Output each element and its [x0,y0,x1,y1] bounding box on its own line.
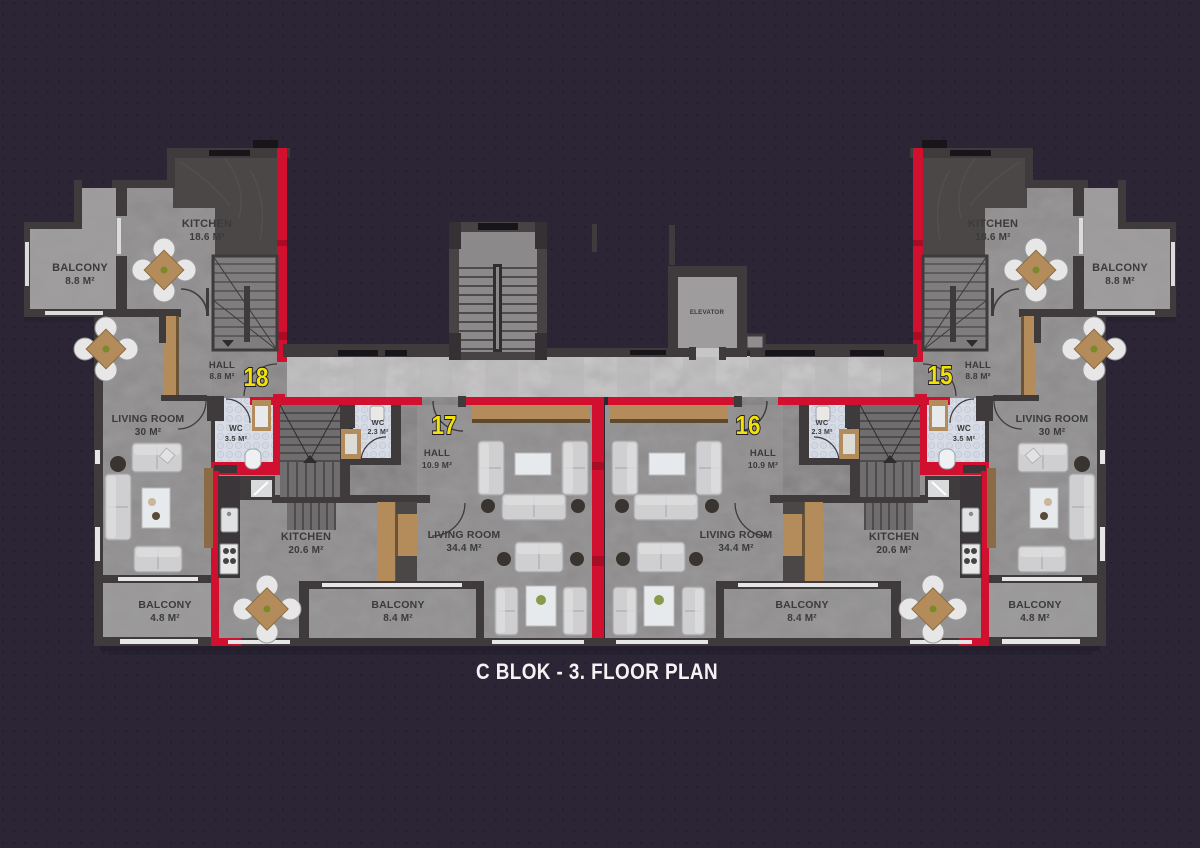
svg-text:ELEVATOR: ELEVATOR [690,309,725,316]
svg-text:LIVING ROOM: LIVING ROOM [428,529,501,541]
svg-text:34.4 M²: 34.4 M² [718,543,754,554]
svg-text:15: 15 [928,360,953,390]
svg-text:4.8 M²: 4.8 M² [150,613,180,624]
svg-text:WC: WC [372,418,385,427]
svg-text:8.4 M²: 8.4 M² [383,613,413,624]
svg-text:4.8 M²: 4.8 M² [1020,613,1050,624]
svg-text:8.8 M²: 8.8 M² [209,371,234,381]
svg-text:HALL: HALL [209,360,235,371]
svg-text:HALL: HALL [750,448,776,459]
svg-text:KITCHEN: KITCHEN [182,218,232,230]
svg-text:3.5 M²: 3.5 M² [225,434,248,443]
svg-text:BALCONY: BALCONY [775,599,828,611]
svg-text:18.6 M²: 18.6 M² [189,232,225,243]
svg-text:C BLOK - 3. FLOOR PLAN: C BLOK - 3. FLOOR PLAN [476,659,718,684]
svg-text:BALCONY: BALCONY [1092,262,1148,274]
svg-text:BALCONY: BALCONY [371,599,424,611]
svg-text:BALCONY: BALCONY [52,262,108,274]
svg-text:8.4 M²: 8.4 M² [787,613,817,624]
svg-text:BALCONY: BALCONY [138,599,191,611]
svg-text:18.6 M²: 18.6 M² [975,232,1011,243]
svg-text:8.8 M²: 8.8 M² [1105,276,1135,287]
svg-text:17: 17 [432,410,457,440]
svg-text:30 M²: 30 M² [1039,427,1066,438]
svg-text:LIVING ROOM: LIVING ROOM [1016,413,1089,425]
svg-text:KITCHEN: KITCHEN [968,218,1018,230]
svg-text:KITCHEN: KITCHEN [281,531,331,543]
svg-text:WC: WC [957,424,971,433]
svg-text:HALL: HALL [965,360,991,371]
svg-text:16: 16 [736,410,761,440]
svg-text:8.8 M²: 8.8 M² [65,276,95,287]
svg-text:WC: WC [816,418,829,427]
svg-text:LIVING ROOM: LIVING ROOM [112,413,185,425]
svg-text:2.3 M²: 2.3 M² [367,429,389,436]
svg-text:10.9 M²: 10.9 M² [748,460,778,470]
svg-text:20.6 M²: 20.6 M² [876,545,912,556]
svg-text:WC: WC [229,424,243,433]
svg-text:BALCONY: BALCONY [1008,599,1061,611]
svg-text:20.6 M²: 20.6 M² [288,545,324,556]
svg-text:30 M²: 30 M² [135,427,162,438]
svg-text:LIVING ROOM: LIVING ROOM [700,529,773,541]
svg-text:2.3 M²: 2.3 M² [811,429,833,436]
svg-text:3.5 M²: 3.5 M² [953,434,976,443]
svg-text:8.8 M²: 8.8 M² [965,371,990,381]
svg-text:18: 18 [244,362,269,392]
svg-text:34.4 M²: 34.4 M² [446,543,482,554]
svg-text:10.9 M²: 10.9 M² [422,460,452,470]
svg-text:KITCHEN: KITCHEN [869,531,919,543]
svg-text:HALL: HALL [424,448,450,459]
